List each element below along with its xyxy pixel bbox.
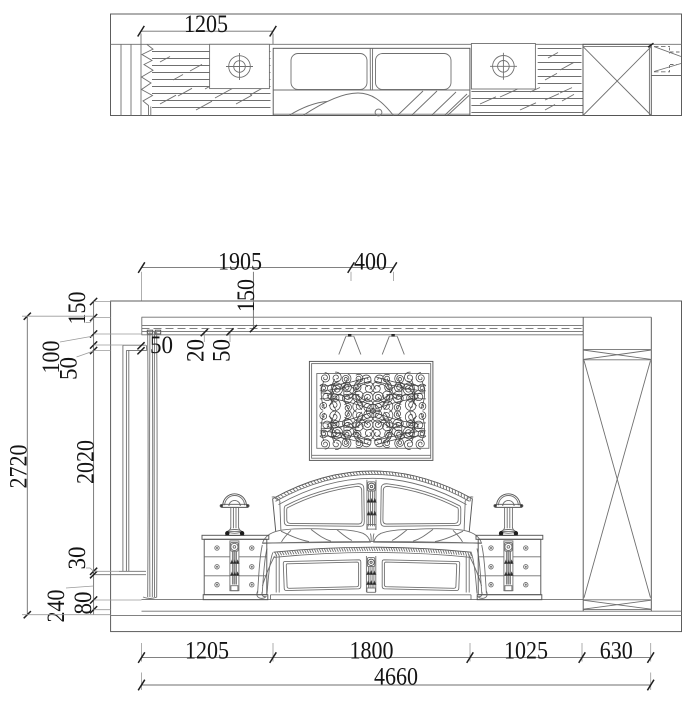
svg-text:400: 400: [354, 249, 387, 276]
svg-text:150: 150: [64, 292, 91, 325]
svg-text:1205: 1205: [184, 11, 228, 38]
svg-text:240: 240: [43, 590, 70, 623]
svg-text:30: 30: [64, 547, 91, 570]
svg-text:1800: 1800: [350, 637, 394, 664]
svg-text:80: 80: [70, 592, 97, 615]
svg-text:50: 50: [56, 357, 83, 380]
svg-text:20: 20: [183, 339, 210, 362]
svg-text:2020: 2020: [73, 440, 100, 484]
svg-text:1905: 1905: [218, 249, 262, 276]
svg-text:1025: 1025: [504, 637, 548, 664]
svg-text:150: 150: [233, 279, 260, 312]
svg-text:2720: 2720: [6, 445, 33, 489]
svg-text:50: 50: [150, 332, 173, 359]
svg-text:630: 630: [600, 637, 633, 664]
svg-text:4660: 4660: [374, 664, 418, 691]
svg-text:1205: 1205: [185, 637, 229, 664]
svg-text:50: 50: [209, 339, 236, 362]
